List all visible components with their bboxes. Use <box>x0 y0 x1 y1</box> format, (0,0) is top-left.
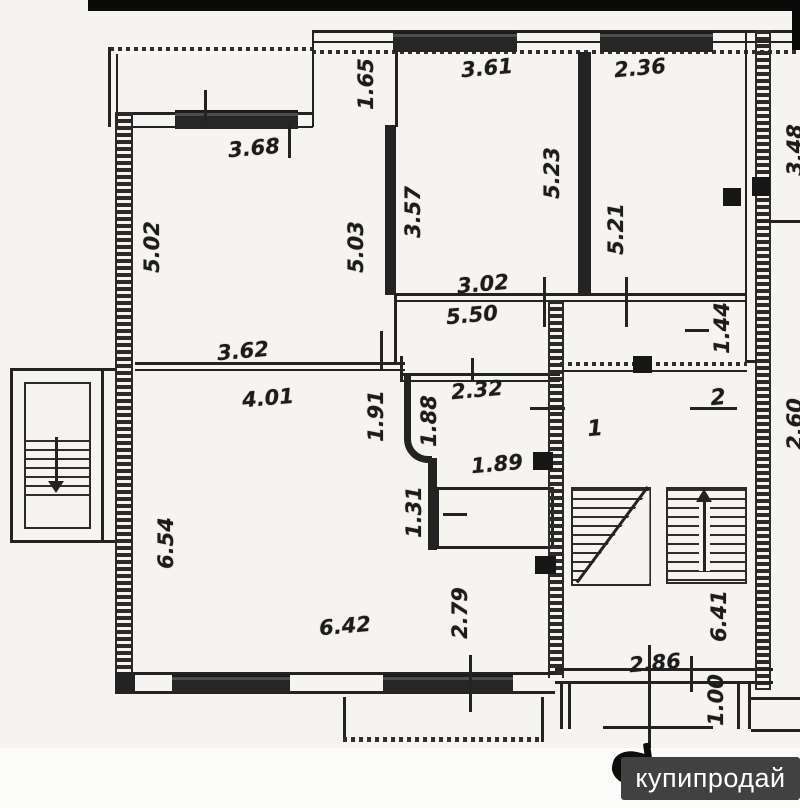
window <box>600 31 713 52</box>
porch <box>603 726 713 729</box>
dimension-tick <box>625 277 628 327</box>
scan-border-corner <box>792 0 800 50</box>
dim-1-65: 1.65 <box>354 58 378 110</box>
porch <box>751 697 800 700</box>
down-arrow-icon <box>48 481 64 493</box>
dim-1-44: 1.44 <box>710 302 734 354</box>
watermark: купипродай <box>621 757 800 800</box>
balcony-edge <box>343 697 346 742</box>
wall <box>312 50 797 54</box>
dim-1-91: 1.91 <box>364 390 388 442</box>
room-number-2: 2 <box>709 385 726 411</box>
wall-corner <box>115 672 135 694</box>
dimension-tick <box>380 331 383 369</box>
window <box>172 674 290 693</box>
dim-3-57: 3.57 <box>401 186 425 238</box>
balcony-edge <box>541 697 544 742</box>
dim-3-68: 3.68 <box>227 134 281 162</box>
dim-5-23: 5.23 <box>540 147 564 199</box>
dim-6-42: 6.42 <box>318 612 372 640</box>
hatched-wall <box>115 112 133 693</box>
closet <box>436 487 554 549</box>
dim-5-21: 5.21 <box>604 203 628 255</box>
window <box>383 674 513 693</box>
dim-5-03: 5.03 <box>344 221 368 273</box>
wall <box>745 30 747 362</box>
wall <box>396 293 747 296</box>
up-arrow-line <box>703 500 706 572</box>
window <box>393 31 517 52</box>
dimension-tick <box>690 656 693 692</box>
wall <box>104 368 115 371</box>
wall <box>312 41 797 43</box>
door-block <box>752 177 770 196</box>
wall <box>394 295 397 365</box>
wall <box>747 360 757 363</box>
dimension-tick <box>543 277 546 327</box>
dimension-tick <box>288 124 291 158</box>
porch <box>560 683 563 729</box>
floor-plan-scan: 1.65 3.61 2.36 3.68 5.02 5.03 3.57 5.23 … <box>0 0 800 808</box>
dim-5-50: 5.50 <box>445 301 499 329</box>
wall <box>400 356 403 382</box>
watermark-text: купипродай <box>635 763 785 794</box>
wall <box>757 220 800 223</box>
porch <box>751 729 800 732</box>
dimension-tick <box>204 90 207 122</box>
hatched-wall <box>755 30 771 690</box>
wall <box>312 30 797 33</box>
door-block <box>535 556 556 574</box>
door-block <box>723 188 741 206</box>
dim-cut-right-lower: 2.60 <box>783 398 800 450</box>
wall <box>385 125 396 295</box>
down-arrow-line <box>55 437 58 483</box>
balcony-edge <box>343 737 544 742</box>
porch <box>568 683 571 729</box>
dim-3-62: 3.62 <box>216 337 270 365</box>
dim-1-88: 1.88 <box>417 395 441 447</box>
room-number-1: 1 <box>586 416 603 442</box>
porch <box>748 683 751 729</box>
door-opening <box>530 407 565 410</box>
door-block <box>533 452 553 470</box>
dim-3-61: 3.61 <box>460 54 514 82</box>
wall <box>555 681 773 684</box>
dim-6-54: 6.54 <box>154 517 178 569</box>
wall <box>396 300 747 302</box>
dim-4-01: 4.01 <box>241 384 295 412</box>
dim-1-89: 1.89 <box>470 450 524 478</box>
door-block <box>633 356 652 373</box>
dimension-tick <box>471 358 474 380</box>
dim-1-00: 1.00 <box>704 674 728 726</box>
scan-border-top <box>88 0 800 11</box>
window <box>175 110 298 129</box>
dim-3-02: 3.02 <box>456 270 510 298</box>
dim-5-02: 5.02 <box>140 221 164 273</box>
wall <box>135 362 405 365</box>
dim-6-41: 6.41 <box>707 590 731 642</box>
dimension-tick <box>443 513 467 516</box>
porch <box>737 683 740 729</box>
hatched-wall <box>548 300 564 678</box>
hatched-wall <box>560 362 747 366</box>
balcony-edge <box>108 47 111 127</box>
dim-2-86: 2.86 <box>628 649 682 677</box>
wall <box>685 329 709 332</box>
wall <box>578 52 591 295</box>
wall <box>560 370 747 372</box>
dim-2-36: 2.36 <box>613 54 667 82</box>
wall <box>104 540 115 543</box>
dimension-tick <box>469 655 472 712</box>
dim-2-32: 2.32 <box>450 376 504 404</box>
up-arrow-icon <box>696 489 712 502</box>
dim-1-31: 1.31 <box>402 486 426 538</box>
wall <box>135 369 405 371</box>
wall <box>395 52 398 127</box>
balcony-edge <box>110 47 312 51</box>
dim-2-79: 2.79 <box>448 587 472 639</box>
dim-cut-right-upper: 3.48 <box>783 124 800 176</box>
